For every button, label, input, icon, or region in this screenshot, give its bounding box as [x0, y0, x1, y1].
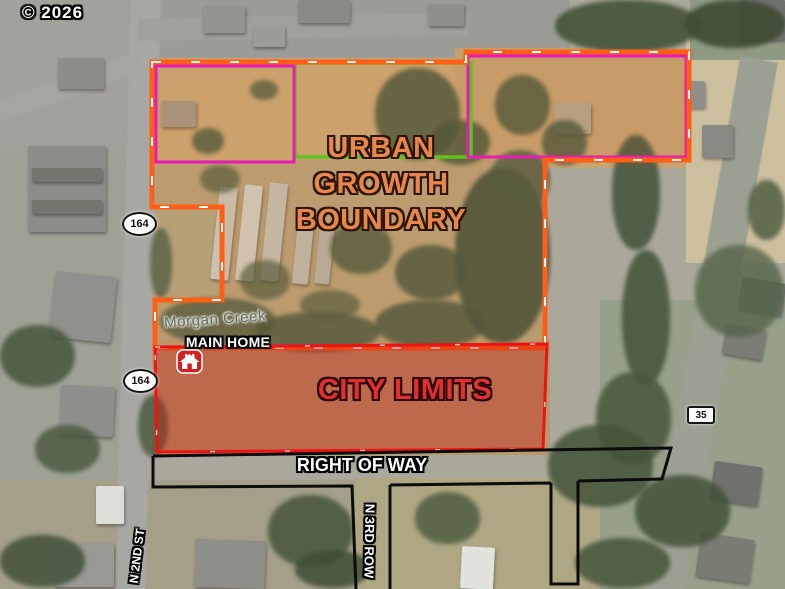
copyright-text: © 2026 — [22, 3, 83, 23]
route-35-shield: 35 — [687, 406, 715, 424]
ugb-line-1: URBAN — [250, 130, 512, 166]
right-of-way-label: RIGHT OF WAY — [292, 455, 432, 476]
aerial-map: © 2026 URBAN GROWTH BOUNDARY CITY LIMITS… — [0, 0, 785, 589]
house-icon — [176, 349, 203, 379]
city-limits-label: CITY LIMITS — [300, 374, 510, 407]
urban-growth-boundary-label: URBAN GROWTH BOUNDARY — [250, 130, 512, 238]
route-164-shield-upper: 164 — [122, 212, 157, 236]
main-home-label: MAIN HOME — [168, 334, 288, 350]
n-3rd-row-label: N 3RD ROW — [360, 494, 378, 588]
route-164-shield-lower: 164 — [123, 369, 158, 393]
ugb-line-3: BOUNDARY — [250, 202, 512, 238]
ugb-line-2: GROWTH — [250, 166, 512, 202]
boundary-overlay — [0, 0, 785, 589]
